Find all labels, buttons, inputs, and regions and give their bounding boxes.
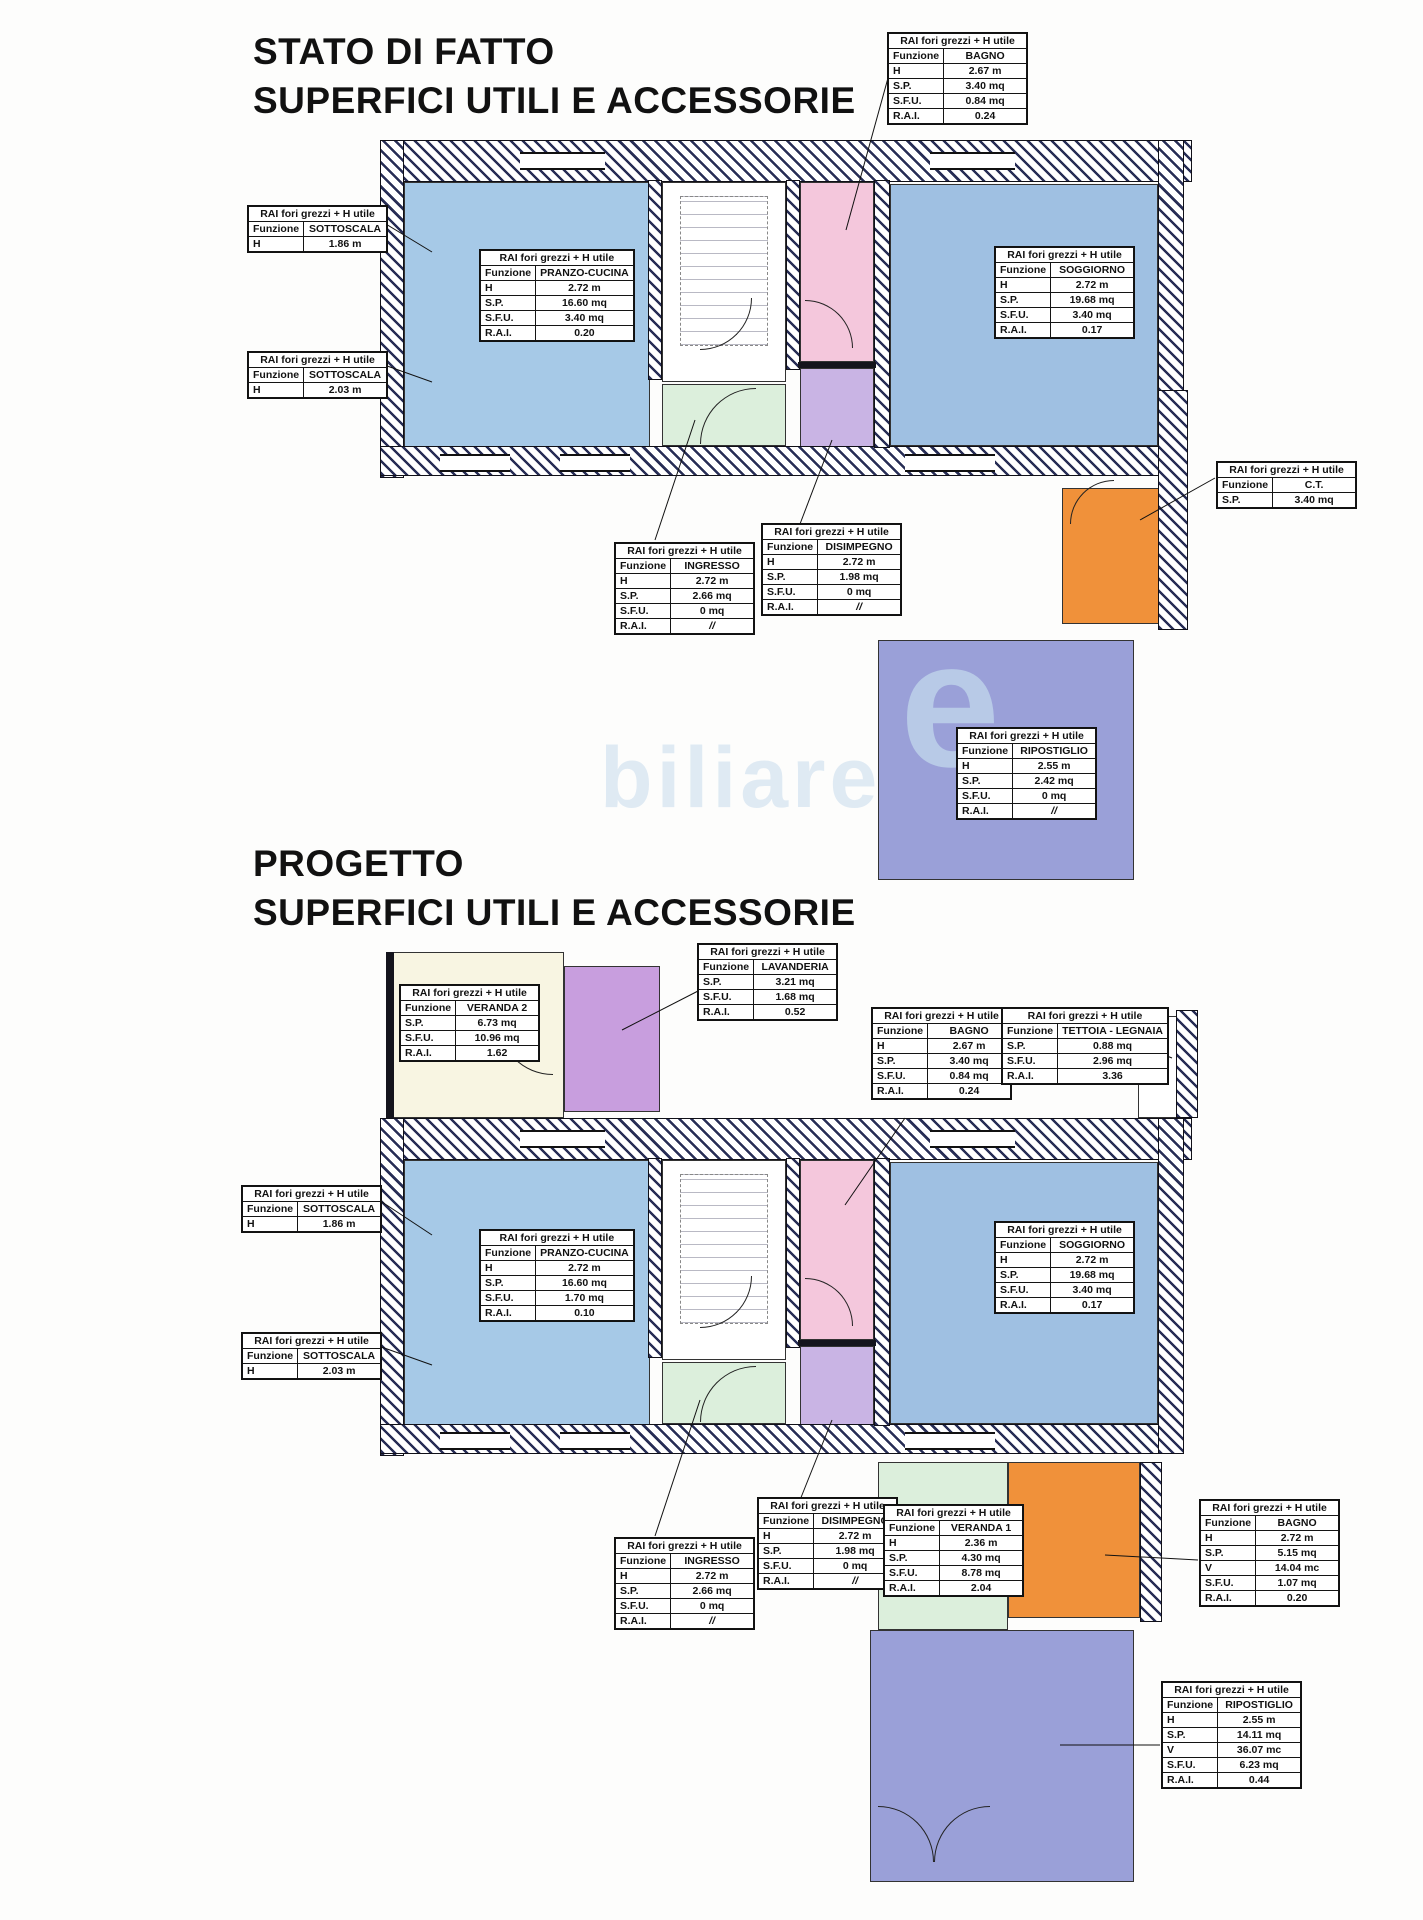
row-label: R.A.I.	[889, 109, 944, 124]
wall	[874, 180, 890, 448]
row-label: S.F.U.	[759, 1559, 814, 1574]
funzione-label: Funzione	[616, 1554, 671, 1569]
rai-table: RAI fori grezzi + H utileFunzioneVERANDA…	[884, 1505, 1023, 1596]
row-label: S.P.	[1003, 1039, 1058, 1054]
row-label: S.P.	[699, 975, 754, 990]
funzione-value: RIPOSTIGLIO	[1013, 744, 1096, 759]
wall	[1176, 1010, 1198, 1118]
row-value: 2.66 mq	[671, 589, 754, 604]
funzione-label: Funzione	[243, 1202, 298, 1217]
funzione-value: BAGNO	[1256, 1516, 1339, 1531]
row-value: 3.36	[1058, 1069, 1168, 1084]
rai-table-pranzo-sdf: RAI fori grezzi + H utileFunzionePRANZO-…	[480, 250, 634, 341]
row-label: S.F.U.	[958, 789, 1013, 804]
row-label: H	[873, 1039, 928, 1054]
row-value: 19.68 mq	[1051, 293, 1134, 308]
row-value: 2.72 m	[1051, 1253, 1134, 1268]
row-value: 36.07 mc	[1218, 1743, 1301, 1758]
row-value: 5.15 mq	[1256, 1546, 1339, 1561]
rai-table: RAI fori grezzi + H utileFunzioneC.T.S.P…	[1217, 462, 1356, 508]
wall	[380, 140, 404, 478]
row-value: 1.07 mq	[1256, 1576, 1339, 1591]
row-label: H	[759, 1529, 814, 1544]
row-label: H	[616, 574, 671, 589]
row-label: S.F.U.	[481, 311, 536, 326]
row-value: 4.30 mq	[940, 1551, 1023, 1566]
funzione-label: Funzione	[1003, 1024, 1058, 1039]
row-label: R.A.I.	[699, 1005, 754, 1020]
row-value: 2.42 mq	[1013, 774, 1096, 789]
row-label: H	[249, 237, 304, 252]
row-value: 2.67 m	[928, 1039, 1011, 1054]
window	[930, 1130, 1015, 1148]
progetto-title: PROGETTO SUPERFICI UTILI E ACCESSORIE	[253, 840, 856, 938]
row-value: 2.72 m	[536, 1261, 634, 1276]
wall-divider	[798, 362, 876, 368]
row-label: H	[481, 1261, 536, 1276]
row-value: 1.62	[456, 1046, 539, 1061]
rai-table-ripostiglio-prg: RAI fori grezzi + H utileFunzioneRIPOSTI…	[1162, 1682, 1301, 1788]
row-label: S.P.	[759, 1544, 814, 1559]
row-value: 2.72 m	[671, 574, 754, 589]
row-value: //	[671, 619, 754, 634]
row-label: S.F.U.	[889, 94, 944, 109]
funzione-label: Funzione	[481, 266, 536, 281]
row-value: 2.55 m	[1013, 759, 1096, 774]
funzione-value: SOTTOSCALA	[298, 1202, 381, 1217]
rai-table-veranda-1: RAI fori grezzi + H utileFunzioneVERANDA…	[884, 1505, 1023, 1596]
room-lavanderia	[564, 966, 660, 1112]
row-label: R.A.I.	[616, 1614, 671, 1629]
funzione-value: INGRESSO	[671, 1554, 754, 1569]
funzione-label: Funzione	[1201, 1516, 1256, 1531]
wall	[648, 180, 662, 380]
rai-table-ingresso-prg: RAI fori grezzi + H utileFunzioneINGRESS…	[615, 1538, 754, 1629]
rai-table-ct: RAI fori grezzi + H utileFunzioneC.T.S.P…	[1217, 462, 1356, 508]
rai-table: RAI fori grezzi + H utileFunzioneBAGNOH2…	[1200, 1500, 1339, 1606]
row-value: 2.72 m	[1051, 278, 1134, 293]
window	[520, 152, 605, 170]
row-label: S.P.	[1163, 1728, 1218, 1743]
row-label: H	[1163, 1713, 1218, 1728]
row-label: S.P.	[481, 296, 536, 311]
wall	[1158, 390, 1188, 630]
rai-table: RAI fori grezzi + H utileFunzioneDISIMPE…	[758, 1498, 897, 1589]
row-label: R.A.I.	[481, 326, 536, 341]
row-value: //	[1013, 804, 1096, 819]
funzione-label: Funzione	[616, 559, 671, 574]
rai-table-tettoia: RAI fori grezzi + H utileFunzioneTETTOIA…	[1002, 1008, 1168, 1084]
window	[440, 1432, 510, 1450]
wall	[380, 140, 1192, 182]
row-value: 2.03 m	[304, 383, 387, 398]
rai-table: RAI fori grezzi + H utileFunzioneTETTOIA…	[1002, 1008, 1168, 1084]
row-label: H	[616, 1569, 671, 1584]
rai-table-bagno-top: RAI fori grezzi + H utileFunzioneBAGNOH2…	[888, 33, 1027, 124]
row-value: 3.21 mq	[754, 975, 837, 990]
row-value: 2.04	[940, 1581, 1023, 1596]
wall	[874, 1158, 890, 1426]
rai-table: RAI fori grezzi + H utileFunzioneINGRESS…	[615, 1538, 754, 1629]
funzione-value: BAGNO	[944, 49, 1027, 64]
row-label: S.P.	[885, 1551, 940, 1566]
table-header: RAI fori grezzi + H utile	[1163, 1683, 1301, 1698]
row-label: S.P.	[996, 293, 1051, 308]
row-label: S.F.U.	[616, 604, 671, 619]
funzione-value: TETTOIA - LEGNAIA	[1058, 1024, 1168, 1039]
row-value: 0.17	[1051, 323, 1134, 338]
row-value: 1.86 m	[298, 1217, 381, 1232]
rai-table: RAI fori grezzi + H utileFunzioneSOTTOSC…	[242, 1186, 381, 1232]
rai-table-disimpegno-prg: RAI fori grezzi + H utileFunzioneDISIMPE…	[758, 1498, 897, 1589]
row-value: 0.24	[928, 1084, 1011, 1099]
row-value: 1.70 mq	[536, 1291, 634, 1306]
table-header: RAI fori grezzi + H utile	[401, 986, 539, 1001]
row-value: 0.20	[1256, 1591, 1339, 1606]
wall	[786, 1158, 800, 1348]
row-value: 0 mq	[818, 585, 901, 600]
rai-table: RAI fori grezzi + H utileFunzionePRANZO-…	[480, 250, 634, 341]
row-label: H	[958, 759, 1013, 774]
row-value: 1.86 m	[304, 237, 387, 252]
row-label: V	[1163, 1743, 1218, 1758]
funzione-value: PRANZO-CUCINA	[536, 266, 634, 281]
row-label: R.A.I.	[759, 1574, 814, 1589]
rai-table-sottoscala-1-prg: RAI fori grezzi + H utileFunzioneSOTTOSC…	[242, 1186, 381, 1232]
table-header: RAI fori grezzi + H utile	[885, 1506, 1023, 1521]
row-label: S.F.U.	[699, 990, 754, 1005]
window	[520, 1130, 605, 1148]
row-label: S.F.U.	[1003, 1054, 1058, 1069]
rai-table-sottoscala-2: RAI fori grezzi + H utileFunzioneSOTTOSC…	[248, 352, 387, 398]
row-label: S.P.	[481, 1276, 536, 1291]
row-value: 8.78 mq	[940, 1566, 1023, 1581]
wall	[1158, 1118, 1184, 1454]
funzione-value: INGRESSO	[671, 559, 754, 574]
rai-table: RAI fori grezzi + H utileFunzioneVERANDA…	[400, 985, 539, 1061]
rai-table-soggiorno-sdf: RAI fori grezzi + H utileFunzioneSOGGIOR…	[995, 247, 1134, 338]
funzione-label: Funzione	[958, 744, 1013, 759]
row-label: H	[243, 1217, 298, 1232]
funzione-value: VERANDA 1	[940, 1521, 1023, 1536]
wall	[1140, 1462, 1162, 1622]
funzione-label: Funzione	[699, 960, 754, 975]
rai-table-bagno-mid: RAI fori grezzi + H utileFunzioneBAGNOH2…	[872, 1008, 1011, 1099]
row-value: 3.40 mq	[1273, 493, 1356, 508]
rai-table: RAI fori grezzi + H utileFunzioneSOTTOSC…	[248, 206, 387, 252]
window	[440, 454, 510, 472]
table-header: RAI fori grezzi + H utile	[996, 1223, 1134, 1238]
funzione-value: SOTTOSCALA	[304, 222, 387, 237]
row-label: S.P.	[889, 79, 944, 94]
row-value: 16.60 mq	[536, 1276, 634, 1291]
funzione-value: PRANZO-CUCINA	[536, 1246, 634, 1261]
funzione-label: Funzione	[401, 1001, 456, 1016]
row-label: S.P.	[616, 589, 671, 604]
row-value: 16.60 mq	[536, 296, 634, 311]
funzione-value: SOGGIORNO	[1051, 1238, 1134, 1253]
wall	[380, 1118, 404, 1456]
row-value: 3.40 mq	[928, 1054, 1011, 1069]
row-value: 0.10	[536, 1306, 634, 1321]
row-label: R.A.I.	[996, 323, 1051, 338]
row-value: 0.84 mq	[928, 1069, 1011, 1084]
row-label: R.A.I.	[1163, 1773, 1218, 1788]
table-header: RAI fori grezzi + H utile	[243, 1187, 381, 1202]
row-label: R.A.I.	[481, 1306, 536, 1321]
row-label: H	[763, 555, 818, 570]
row-label: R.A.I.	[1003, 1069, 1058, 1084]
row-value: 2.67 m	[944, 64, 1027, 79]
row-label: H	[996, 278, 1051, 293]
rai-table: RAI fori grezzi + H utileFunzioneRIPOSTI…	[957, 728, 1096, 819]
room-disimpegno	[800, 368, 874, 448]
row-value: 3.40 mq	[1051, 308, 1134, 323]
wall	[786, 180, 800, 370]
row-label: S.F.U.	[616, 1599, 671, 1614]
row-value: 2.36 m	[940, 1536, 1023, 1551]
row-value: 14.04 mc	[1256, 1561, 1339, 1576]
rai-table-veranda-2: RAI fori grezzi + H utileFunzioneVERANDA…	[400, 985, 539, 1061]
funzione-label: Funzione	[243, 1349, 298, 1364]
row-value: 2.72 m	[671, 1569, 754, 1584]
funzione-label: Funzione	[1163, 1698, 1218, 1713]
funzione-value: SOGGIORNO	[1051, 263, 1134, 278]
table-header: RAI fori grezzi + H utile	[763, 525, 901, 540]
funzione-label: Funzione	[885, 1521, 940, 1536]
table-header: RAI fori grezzi + H utile	[889, 34, 1027, 49]
watermark-text: biliare	[600, 735, 881, 821]
stato-title-line2: SUPERFICI UTILI E ACCESSORIE	[253, 77, 856, 126]
row-value: 6.23 mq	[1218, 1758, 1301, 1773]
row-value: 2.72 m	[536, 281, 634, 296]
table-header: RAI fori grezzi + H utile	[1003, 1009, 1168, 1024]
rai-table-ripostiglio-sdf: RAI fori grezzi + H utileFunzioneRIPOSTI…	[957, 728, 1096, 819]
funzione-value: SOTTOSCALA	[298, 1349, 381, 1364]
row-label: H	[481, 281, 536, 296]
funzione-value: BAGNO	[928, 1024, 1011, 1039]
door-arc	[1070, 480, 1114, 524]
table-header: RAI fori grezzi + H utile	[759, 1499, 897, 1514]
funzione-label: Funzione	[889, 49, 944, 64]
row-value: //	[671, 1614, 754, 1629]
row-label: S.F.U.	[873, 1069, 928, 1084]
row-value: 0.17	[1051, 1298, 1134, 1313]
row-value: 0.44	[1218, 1773, 1301, 1788]
row-label: S.P.	[763, 570, 818, 585]
row-label: R.A.I.	[401, 1046, 456, 1061]
funzione-label: Funzione	[873, 1024, 928, 1039]
row-value: 1.98 mq	[818, 570, 901, 585]
row-label: H	[889, 64, 944, 79]
row-label: S.P.	[1218, 493, 1273, 508]
rai-table-sottoscala-1: RAI fori grezzi + H utileFunzioneSOTTOSC…	[248, 206, 387, 252]
window	[905, 1432, 995, 1450]
rai-table: RAI fori grezzi + H utileFunzioneBAGNOH2…	[872, 1008, 1011, 1099]
funzione-label: Funzione	[996, 1238, 1051, 1253]
row-value: 19.68 mq	[1051, 1268, 1134, 1283]
row-label: S.P.	[401, 1016, 456, 1031]
window	[930, 152, 1015, 170]
rai-table: RAI fori grezzi + H utileFunzioneSOGGIOR…	[995, 1222, 1134, 1313]
rai-table-bagno-right: RAI fori grezzi + H utileFunzioneBAGNOH2…	[1200, 1500, 1339, 1606]
row-value: 2.66 mq	[671, 1584, 754, 1599]
funzione-value: VERANDA 2	[456, 1001, 539, 1016]
table-header: RAI fori grezzi + H utile	[249, 353, 387, 368]
rai-table-ingresso-sdf: RAI fori grezzi + H utileFunzioneINGRESS…	[615, 543, 754, 634]
window	[560, 454, 630, 472]
rai-table-soggiorno-prg: RAI fori grezzi + H utileFunzioneSOGGIOR…	[995, 1222, 1134, 1313]
row-label: R.A.I.	[763, 600, 818, 615]
funzione-label: Funzione	[759, 1514, 814, 1529]
window	[905, 454, 995, 472]
row-label: S.P.	[996, 1268, 1051, 1283]
rai-table: RAI fori grezzi + H utileFunzioneSOGGIOR…	[995, 247, 1134, 338]
wall	[380, 1118, 1192, 1160]
row-value: 6.73 mq	[456, 1016, 539, 1031]
table-header: RAI fori grezzi + H utile	[243, 1334, 381, 1349]
table-header: RAI fori grezzi + H utile	[1201, 1501, 1339, 1516]
funzione-value: C.T.	[1273, 478, 1356, 493]
table-header: RAI fori grezzi + H utile	[873, 1009, 1011, 1024]
wall-veranda-2	[386, 952, 394, 1118]
row-value: 14.11 mq	[1218, 1728, 1301, 1743]
row-value: 0 mq	[671, 1599, 754, 1614]
funzione-value: RIPOSTIGLIO	[1218, 1698, 1301, 1713]
wall-divider	[798, 1340, 876, 1346]
row-value: //	[818, 600, 901, 615]
funzione-label: Funzione	[249, 368, 304, 383]
row-value: 1.68 mq	[754, 990, 837, 1005]
row-label: S.P.	[958, 774, 1013, 789]
row-label: S.F.U.	[996, 1283, 1051, 1298]
row-value: 2.72 m	[1256, 1531, 1339, 1546]
row-value: 0.20	[536, 326, 634, 341]
row-label: S.F.U.	[1201, 1576, 1256, 1591]
row-value: 10.96 mq	[456, 1031, 539, 1046]
stato-title: STATO DI FATTO SUPERFICI UTILI E ACCESSO…	[253, 28, 856, 126]
row-label: H	[885, 1536, 940, 1551]
row-label: R.A.I.	[996, 1298, 1051, 1313]
progetto-title-line1: PROGETTO	[253, 840, 856, 889]
row-label: R.A.I.	[873, 1084, 928, 1099]
table-header: RAI fori grezzi + H utile	[481, 251, 634, 266]
table-header: RAI fori grezzi + H utile	[958, 729, 1096, 744]
funzione-value: SOTTOSCALA	[304, 368, 387, 383]
row-label: S.P.	[1201, 1546, 1256, 1561]
rai-table: RAI fori grezzi + H utileFunzioneDISIMPE…	[762, 524, 901, 615]
rai-table-lavanderia: RAI fori grezzi + H utileFunzioneLAVANDE…	[698, 944, 837, 1020]
row-value: 0 mq	[671, 604, 754, 619]
rai-table: RAI fori grezzi + H utileFunzioneBAGNOH2…	[888, 33, 1027, 124]
room-disimpegno-prg	[800, 1346, 874, 1426]
row-label: H	[243, 1364, 298, 1379]
rai-table: RAI fori grezzi + H utileFunzioneLAVANDE…	[698, 944, 837, 1020]
row-value: 3.40 mq	[1051, 1283, 1134, 1298]
row-label: R.A.I.	[958, 804, 1013, 819]
table-header: RAI fori grezzi + H utile	[996, 248, 1134, 263]
row-label: R.A.I.	[1201, 1591, 1256, 1606]
rai-table: RAI fori grezzi + H utileFunzioneSOTTOSC…	[242, 1333, 381, 1379]
row-label: S.P.	[616, 1584, 671, 1599]
table-header: RAI fori grezzi + H utile	[616, 1539, 754, 1554]
row-label: R.A.I.	[885, 1581, 940, 1596]
funzione-value: LAVANDERIA	[754, 960, 837, 975]
row-label: H	[249, 383, 304, 398]
funzione-label: Funzione	[481, 1246, 536, 1261]
row-label: S.F.U.	[996, 308, 1051, 323]
row-label: V	[1201, 1561, 1256, 1576]
rai-table-pranzo-prg: RAI fori grezzi + H utileFunzionePRANZO-…	[480, 1230, 634, 1321]
table-header: RAI fori grezzi + H utile	[699, 945, 837, 960]
rai-table: RAI fori grezzi + H utileFunzioneINGRESS…	[615, 543, 754, 634]
rai-table: RAI fori grezzi + H utileFunzioneRIPOSTI…	[1162, 1682, 1301, 1788]
table-header: RAI fori grezzi + H utile	[616, 544, 754, 559]
row-value: 0.84 mq	[944, 94, 1027, 109]
progetto-title-line2: SUPERFICI UTILI E ACCESSORIE	[253, 889, 856, 938]
row-value: 2.96 mq	[1058, 1054, 1168, 1069]
table-header: RAI fori grezzi + H utile	[1218, 463, 1356, 478]
window	[560, 1432, 630, 1450]
rai-table: RAI fori grezzi + H utileFunzionePRANZO-…	[480, 1230, 634, 1321]
stato-title-line1: STATO DI FATTO	[253, 28, 856, 77]
table-header: RAI fori grezzi + H utile	[481, 1231, 634, 1246]
row-label: H	[996, 1253, 1051, 1268]
row-value: 0.88 mq	[1058, 1039, 1168, 1054]
row-value: 0.52	[754, 1005, 837, 1020]
row-value: 2.03 m	[298, 1364, 381, 1379]
row-value: 2.55 m	[1218, 1713, 1301, 1728]
row-value: 3.40 mq	[944, 79, 1027, 94]
funzione-label: Funzione	[763, 540, 818, 555]
funzione-label: Funzione	[996, 263, 1051, 278]
funzione-label: Funzione	[1218, 478, 1273, 493]
funzione-label: Funzione	[249, 222, 304, 237]
row-label: S.F.U.	[1163, 1758, 1218, 1773]
row-label: H	[1201, 1531, 1256, 1546]
row-value: 2.72 m	[818, 555, 901, 570]
row-value: 0 mq	[1013, 789, 1096, 804]
rai-table-sottoscala-2-prg: RAI fori grezzi + H utileFunzioneSOTTOSC…	[242, 1333, 381, 1379]
wall	[648, 1158, 662, 1358]
room-bagno-right	[1008, 1462, 1140, 1618]
rai-table: RAI fori grezzi + H utileFunzioneSOTTOSC…	[248, 352, 387, 398]
row-label: R.A.I.	[616, 619, 671, 634]
row-label: S.F.U.	[885, 1566, 940, 1581]
table-header: RAI fori grezzi + H utile	[249, 207, 387, 222]
row-value: 0.24	[944, 109, 1027, 124]
funzione-value: DISIMPEGNO	[818, 540, 901, 555]
row-label: S.F.U.	[401, 1031, 456, 1046]
row-label: S.F.U.	[481, 1291, 536, 1306]
row-label: S.F.U.	[763, 585, 818, 600]
rai-table-disimpegno-sdf: RAI fori grezzi + H utileFunzioneDISIMPE…	[762, 524, 901, 615]
row-value: 3.40 mq	[536, 311, 634, 326]
row-label: S.P.	[873, 1054, 928, 1069]
